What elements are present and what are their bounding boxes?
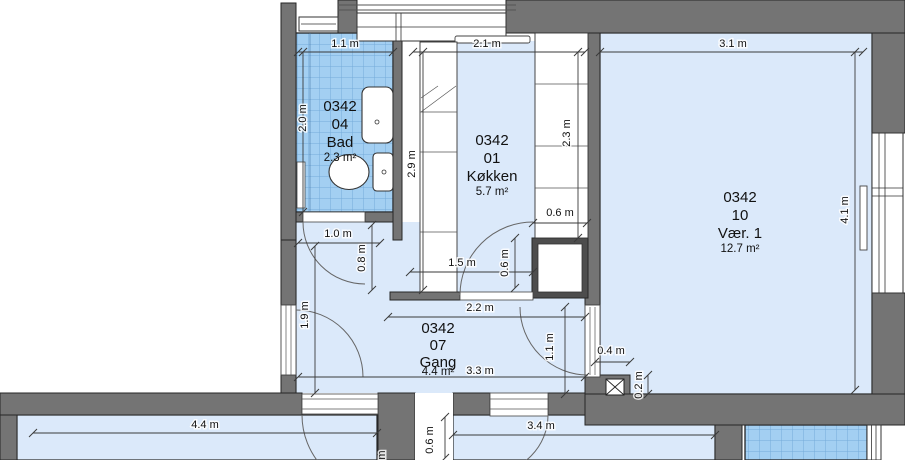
kokken-number: 0342 bbox=[475, 132, 508, 149]
dim-label-lower_left_width: 4.4 m bbox=[191, 419, 219, 431]
dim-label-vaer1_width: 3.1 m bbox=[719, 38, 747, 50]
bad-name: Bad bbox=[327, 134, 354, 151]
dim-label-lower_mid_width: 3.4 m bbox=[527, 420, 555, 432]
gang-number: 0342 bbox=[421, 320, 454, 337]
wall-lowermid-top-left bbox=[453, 393, 490, 415]
shower-strip bbox=[297, 162, 305, 208]
vaer1-unit: 10 bbox=[732, 207, 749, 224]
floor-plan-svg: 1.1 m2.1 m3.1 m2.0 m2.9 m2.3 m0.6 m4.1 m… bbox=[0, 0, 905, 460]
kitchen-counter-left bbox=[420, 42, 457, 292]
dim-label-shaft_width: 0.6 m bbox=[546, 207, 574, 219]
gang-area: 4.4 m² bbox=[422, 366, 455, 378]
dim-label-kitchen_opening: 1.5 m bbox=[448, 257, 476, 269]
kokken-unit: 01 bbox=[484, 150, 501, 167]
radiator bbox=[860, 186, 867, 250]
left-wall-door bbox=[281, 305, 296, 375]
closet-interior bbox=[538, 244, 582, 292]
wall-bottom-band-left bbox=[0, 393, 302, 415]
kokken-name: Køkken bbox=[467, 168, 518, 185]
wall-lowermid-top-right bbox=[548, 393, 585, 415]
sink-icon bbox=[362, 87, 393, 143]
dim-label-vaer1_depth: 4.1 m bbox=[839, 196, 851, 224]
dim-label-kitchen_depth: 2.9 m bbox=[406, 150, 418, 178]
dim-label-bad_width: 1.1 m bbox=[331, 38, 359, 50]
wall-right-lower bbox=[872, 293, 905, 394]
room-lower-right-floor bbox=[745, 425, 867, 460]
dim-label-step_width: 0.4 m bbox=[597, 345, 625, 357]
dim-label-gang_len: 3.3 m bbox=[466, 365, 494, 377]
dim-label-step_depth: 0.2 m bbox=[633, 371, 645, 399]
vaer1-window bbox=[872, 133, 903, 293]
lower-right-window bbox=[867, 425, 881, 460]
dim-label-bad_depth: 2.0 m bbox=[297, 104, 309, 132]
vaer1-number: 0342 bbox=[723, 189, 756, 206]
vaer1-area: 12.7 m² bbox=[721, 243, 760, 255]
wall-lowerleft-left bbox=[0, 415, 17, 460]
wall-right-upper bbox=[872, 33, 905, 133]
wall-left-upper bbox=[281, 3, 296, 240]
kitchen-door-opening bbox=[460, 292, 533, 300]
dim-label-vaer1_door: 1.1 m bbox=[544, 333, 556, 361]
dim-label-bad_door: 1.0 m bbox=[324, 228, 352, 240]
vaer1-name: Vær. 1 bbox=[718, 225, 762, 242]
kokken-area: 5.7 m² bbox=[476, 186, 509, 198]
wall-top-right-band bbox=[506, 0, 905, 33]
bad-door-opening bbox=[303, 212, 365, 222]
bad-number: 0342 bbox=[323, 98, 356, 115]
lower-mid-door-opening bbox=[490, 393, 548, 416]
dim-label-gang_nook: 0.8 m bbox=[356, 244, 368, 272]
bad-area: 2.3 m² bbox=[324, 152, 357, 164]
gang-unit: 07 bbox=[430, 337, 447, 354]
floor-plan-view: 1.1 m2.1 m3.1 m2.0 m2.9 m2.3 m0.6 m4.1 m… bbox=[0, 0, 905, 460]
dim-label-partial: m bbox=[376, 450, 388, 459]
shaft-icon bbox=[606, 379, 624, 395]
vaer1-door-opening bbox=[585, 305, 600, 377]
dim-label-kitchen_door: 0.6 m bbox=[499, 249, 511, 277]
dim-label-passage_width: 0.6 m bbox=[424, 426, 436, 454]
dim-label-gang_width: 2.2 m bbox=[466, 302, 494, 314]
lower-left-door-opening bbox=[302, 394, 378, 414]
bad-unit: 04 bbox=[332, 116, 349, 133]
dim-label-kitchen_window: 2.1 m bbox=[473, 38, 501, 50]
wall-kitchen-bottom bbox=[390, 292, 460, 300]
dim-label-gang_depth: 1.9 m bbox=[299, 301, 311, 329]
wall-left-low bbox=[281, 375, 296, 395]
wall-left-mid bbox=[281, 240, 296, 305]
wall-bad-bottom-right bbox=[365, 212, 393, 222]
wall-passage-left bbox=[378, 393, 415, 460]
dim-label-counter_len: 2.3 m bbox=[561, 119, 573, 147]
